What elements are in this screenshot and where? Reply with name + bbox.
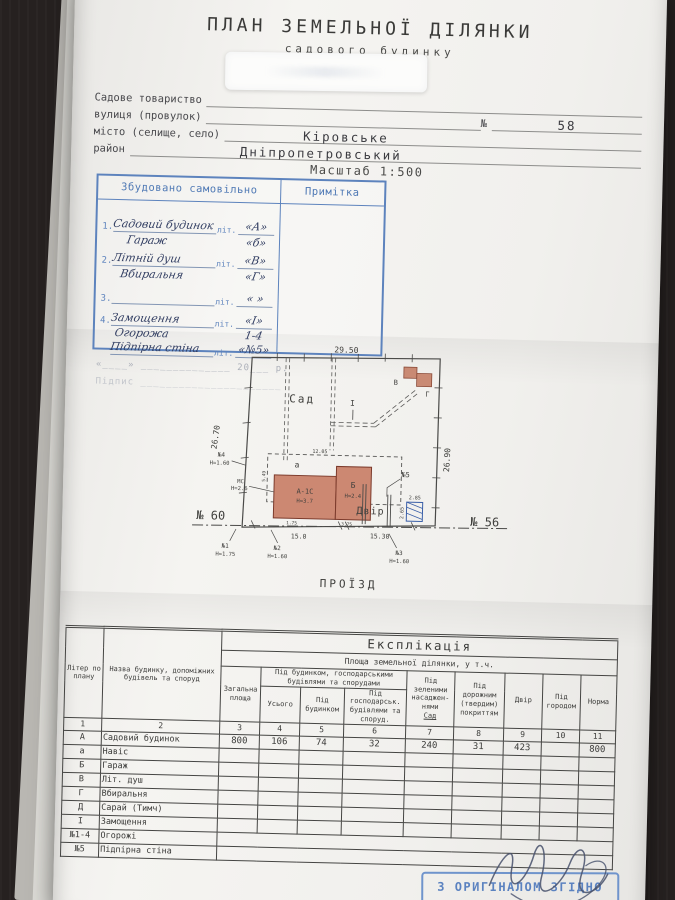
- row-value: 31: [453, 739, 503, 754]
- marker-5-leader: [387, 479, 400, 497]
- canopy-label: а: [294, 460, 299, 469]
- handwritten-mark: «б»: [245, 236, 268, 249]
- wall-marker-leader: [249, 486, 274, 492]
- col-num: 7: [405, 725, 453, 739]
- hdr-yard: Двір: [504, 673, 543, 728]
- col-num: 8: [453, 726, 503, 740]
- self-built-entries: 1.Садовий будинокліт.«А» Гараж«б» 2.Літн…: [103, 206, 275, 210]
- header-rule: [98, 199, 384, 207]
- row-liter: а: [63, 744, 101, 759]
- hdr-under-farm: Під господарськ. будівлями та споруд.: [344, 688, 407, 726]
- hdr-name: Назва будинку, допоміжних будівель та сп…: [102, 627, 222, 720]
- road-label: ПРОЇЗД: [320, 577, 378, 591]
- house: [273, 475, 336, 520]
- entry-mark: «б»: [238, 231, 274, 251]
- hdr-norm: Норма: [580, 675, 617, 730]
- row-value: [541, 742, 579, 757]
- marker-3: №3: [395, 550, 403, 557]
- shed-v: [404, 367, 417, 378]
- hdr-under-house: Під будинком: [300, 687, 345, 724]
- plot-no-right: № 56: [470, 515, 499, 530]
- wall-marker-height: Н=2.6: [231, 486, 248, 492]
- dim-house-1: 1.75: [286, 520, 297, 526]
- bin-dim-h: 2.65: [399, 507, 405, 519]
- handwritten-name: Вбиральня: [119, 267, 184, 281]
- signature-stroke: [489, 844, 608, 893]
- marker-2: №2: [273, 545, 281, 552]
- row-value: 106: [259, 735, 299, 750]
- house-height: Н=3.7: [296, 498, 313, 504]
- plot-no-left: № 60: [196, 508, 225, 523]
- box-divider: [276, 180, 281, 352]
- hdr-green-text: Під зеленими насаджен- нями: [408, 676, 454, 712]
- row-liter: №1-4: [61, 828, 99, 843]
- row-liter: Д: [61, 800, 99, 815]
- hdr-garden: Під городом: [542, 674, 581, 729]
- entry-name: [111, 284, 214, 307]
- signature-stroke: [511, 859, 606, 900]
- self-built-box: Збудовано самовільно Примітка 1.Садовий …: [92, 173, 386, 356]
- entry-row: Вбиральня«Г»: [101, 262, 273, 285]
- handwritten-name: Гараж: [126, 233, 168, 247]
- lit-label: літ.: [214, 297, 236, 307]
- dim-top: 29.50: [334, 345, 358, 355]
- garden-label: Сад: [289, 392, 315, 406]
- handwritten-mark: « »: [245, 292, 264, 305]
- house-label: А-1С: [296, 487, 313, 495]
- garage-height: Н=2.4: [344, 494, 361, 500]
- shed-g-label: Г: [425, 391, 429, 399]
- entry-mark: «Г»: [237, 265, 273, 285]
- entry-name: Вбиральня: [112, 262, 215, 284]
- sticker-smudge: [265, 66, 385, 78]
- hdr-usogo: Усього: [260, 686, 301, 723]
- row-value: 800: [219, 734, 259, 749]
- field-district-label: район: [93, 142, 125, 156]
- shed-g: [417, 373, 432, 386]
- row-liter: №5: [60, 842, 98, 857]
- dim-canopy: 12.05: [312, 449, 327, 455]
- col-num: 9: [503, 728, 541, 742]
- marker-4-leader: [232, 461, 246, 465]
- marker-2-height: Н=1.60: [267, 554, 287, 560]
- dim-street-1: 15.0: [291, 532, 307, 540]
- row-liter: І: [61, 814, 99, 829]
- dim-street-2: 15.30: [370, 532, 390, 540]
- field-city-label: місто (селище, село): [94, 125, 221, 141]
- field-society-label: Садове товариство: [94, 91, 202, 107]
- row-value: 800: [579, 742, 615, 757]
- row-name: Підпірна стіна: [98, 843, 216, 860]
- marker-1-leader: [230, 529, 236, 541]
- row-value: 74: [299, 736, 343, 751]
- row-value: 240: [405, 738, 453, 753]
- hdr-liter: Літер по плану: [64, 626, 104, 717]
- row-liter: А: [63, 730, 101, 745]
- dim-right: 26.90: [442, 448, 452, 473]
- plot-number-label: №: [480, 118, 487, 131]
- col-num: 10: [541, 729, 579, 743]
- site-plan-drawing: 29.50 26.70 26.90 Сад І В Г а 12.05 5.49…: [176, 342, 527, 605]
- lit-label: [215, 283, 237, 284]
- row-liter: Г: [62, 786, 100, 801]
- col-num: 4: [259, 722, 299, 736]
- col-num: 3: [220, 721, 260, 735]
- wall-marker-label: МС: [237, 479, 244, 485]
- entry-mark: « »: [236, 287, 272, 308]
- row-liter: В: [62, 772, 100, 787]
- hdr-green-sub: Сад: [407, 711, 452, 721]
- marker-1-height: Н=1.75: [215, 551, 235, 557]
- row-value: 32: [343, 737, 405, 753]
- col-num: 1: [64, 717, 102, 731]
- field-street-label: вулиця (провулок): [94, 108, 202, 124]
- marker-2-leader: [271, 530, 278, 543]
- entry-no: 3.: [100, 294, 111, 304]
- marker-1: №1: [221, 543, 229, 550]
- walkway-dashed: [331, 387, 419, 428]
- dim-canopy-side: 5.49: [261, 470, 267, 481]
- hdr-road: Під дорожним (твердим) покриттям: [454, 672, 505, 728]
- note-title: Примітка: [280, 185, 384, 200]
- self-built-title: Збудовано самовільно: [98, 181, 280, 197]
- marker-4: №4: [218, 452, 226, 459]
- blue-structure-hatch: [406, 502, 422, 519]
- hdr-green: Під зеленими насаджен- нями Сад: [406, 671, 455, 727]
- fence-dashed-lines: [284, 357, 336, 463]
- plot-number-value: 58: [492, 116, 642, 135]
- row-liter: Б: [63, 758, 101, 773]
- white-sticker: [225, 52, 428, 93]
- garage-label: Б: [351, 481, 356, 490]
- marker-3-leader: [389, 534, 397, 548]
- hdr-total: Загальна площа: [220, 666, 261, 721]
- handwritten-mark: «Г»: [244, 270, 267, 283]
- marker-5: №5: [400, 471, 410, 479]
- document-sheet: ПЛАН ЗЕМЕЛЬНОЇ ДІЛЯНКИ садового будинку …: [53, 0, 668, 900]
- shed-v-label: В: [394, 379, 398, 387]
- photo-of-land-plan-document: ПЛАН ЗЕМЕЛЬНОЇ ДІЛЯНКИ садового будинку …: [0, 0, 675, 900]
- col-num: 11: [579, 729, 615, 743]
- yard-label: Двір: [356, 505, 384, 518]
- col-num: 5: [299, 723, 343, 737]
- row-value: 423: [503, 741, 541, 756]
- entry-row: 3.літ.« »: [100, 284, 272, 308]
- bin-dim-w: 2.85: [409, 495, 421, 501]
- walkway-label: І: [350, 399, 355, 408]
- marker-3-height: Н=1.60: [389, 559, 409, 565]
- signature: [481, 823, 633, 900]
- marker-4-height: Н=1.60: [210, 460, 230, 466]
- dim-left: 26.70: [210, 424, 222, 449]
